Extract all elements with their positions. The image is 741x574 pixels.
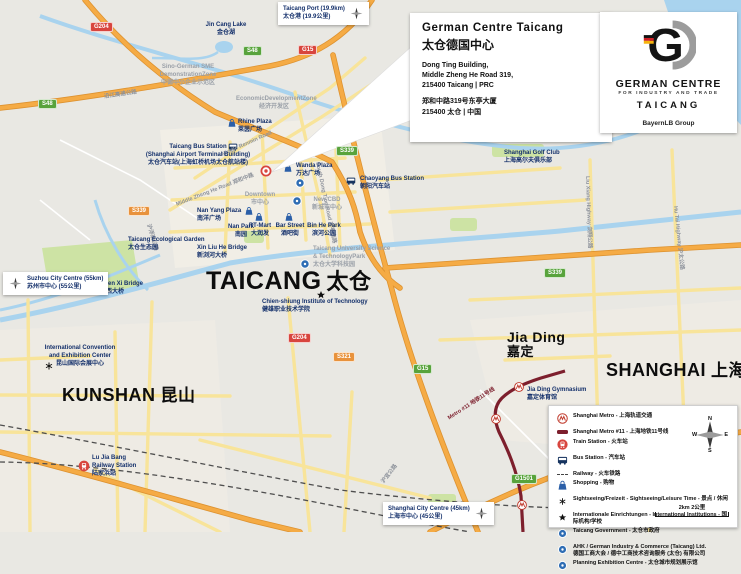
road-badge-s48: S48 xyxy=(38,99,57,109)
distance-box-shanghai: Shanghai City Centre (45km) 上海市中心 (45公里) xyxy=(383,502,494,525)
address-line: 郑和中路319号东亭大厦 xyxy=(422,97,600,107)
city-name-zh: 嘉定 xyxy=(507,345,565,359)
poi-line: Xin Liu He Bridge xyxy=(197,245,247,253)
legend-label: Sightseeing/Freizeit - Sightseeing/Leisu… xyxy=(573,496,728,503)
poi-line: RT-Mart xyxy=(245,223,275,231)
scale-bar: 2km 2公里 xyxy=(655,503,729,517)
poi-new-cbd: New CBD 新城市中心 xyxy=(305,197,349,213)
german-centre-logo-icon: G xyxy=(642,18,696,72)
legend-label: Bus Station - 汽车站 xyxy=(573,455,625,462)
scale-line xyxy=(655,512,729,517)
compass-north-label: N xyxy=(708,416,712,422)
poi-rt-mart: RT-Mart 大润发 xyxy=(245,223,275,239)
poi-intl-convention-center: International Convention and Exhibition … xyxy=(40,345,120,368)
shopping-bag-icon xyxy=(556,480,569,494)
train-station-icon xyxy=(556,439,569,453)
legend-label: Train Station - 火车站 xyxy=(573,439,628,446)
metro-logo-icon xyxy=(556,413,569,427)
poi-sino-german-zone: Sino-German SME DemonstrationZone 中德中小企业… xyxy=(146,64,230,87)
poi-line: 酒吧街 xyxy=(275,231,305,239)
city-name-zh: 太仓 xyxy=(327,269,372,294)
city-label-kunshan: KUNSHAN昆山 xyxy=(62,381,196,406)
blue-marker-icon xyxy=(556,560,569,574)
distance-text-zh: 上海市中心 (45公里) xyxy=(388,513,470,521)
legend-row: Shopping - 购物 xyxy=(556,480,730,494)
poi-line: 新浏河大桥 xyxy=(197,253,247,261)
poi-line: 健雄职业技术学院 xyxy=(262,307,368,315)
poi-line: 昆山国际会展中心 xyxy=(40,361,120,369)
legend-row: Taicang Government - 太仓市政府 xyxy=(556,528,730,542)
poi-line: Jia Ding Gymnasium xyxy=(527,387,586,395)
compass-east-label: E xyxy=(724,432,728,438)
distance-box-taicang-port: Taicang Port (19.9km) 太仓港 (19.9公里) xyxy=(278,2,369,25)
legend-label: Shanghai Metro - 上海轨道交通 xyxy=(573,413,652,420)
poi-line: 南洋广场 xyxy=(197,216,241,224)
international-star-icon xyxy=(556,512,569,526)
poi-shanghai-golf-club: Shanghai Golf Club 上海高尔夫俱乐部 xyxy=(504,150,560,166)
poi-line: 太仓生态园 xyxy=(128,245,205,253)
distance-text-en: Shanghai City Centre (45km) xyxy=(388,505,470,513)
poi-line: Chaoyang Bus Station xyxy=(360,176,424,184)
poi-line: Railway Station xyxy=(92,463,136,471)
city-name-zh: 昆山 xyxy=(161,386,196,405)
city-name-en: SHANGHAI xyxy=(606,360,706,380)
road-badge-g204: G204 xyxy=(90,22,113,32)
blue-marker-icon xyxy=(556,544,569,558)
poi-line: Wanda Plaza xyxy=(296,163,332,171)
poi-line: DemonstrationZone xyxy=(146,72,230,80)
road-badge-g15: G15 xyxy=(413,364,432,374)
map-legend: Shanghai Metro - 上海轨道交通 Shanghai Metro #… xyxy=(548,405,738,528)
blue-marker-icon xyxy=(556,528,569,542)
poi-economic-development-zone: EconomicDevelopmentZone 经济开发区 xyxy=(236,96,312,112)
callout-title-en: German Centre Taicang xyxy=(422,22,600,34)
legend-row: AHK / German Industry & Commerce (Taican… xyxy=(556,544,730,558)
logo-letter: G xyxy=(647,19,683,71)
poi-line: Chien-shiung Institute of Technology xyxy=(262,299,368,307)
railway-icon xyxy=(556,471,569,478)
road-badge-g1501: G1501 xyxy=(511,474,537,484)
legend-label: Taicang Government - 太仓市政府 xyxy=(573,528,660,535)
poi-lu-jia-bang-station: Lu Jia Bang Railway Station 陆家浜站 xyxy=(92,455,136,478)
poi-line: Taicang Ecological Garden xyxy=(128,237,205,245)
compass-west-label: W xyxy=(692,432,697,438)
blue-marker-icon xyxy=(293,197,301,205)
german-centre-logo-card: G GERMAN CENTRE FOR INDUSTRY AND TRADE T… xyxy=(600,12,737,133)
poi-university-science-park: Taicang University Science & TechnologyP… xyxy=(313,246,390,269)
poi-taicang-bus-station: Taicang Bus Station (Shanghai Airport Te… xyxy=(118,144,278,167)
city-label-shanghai: SHANGHAI上海 xyxy=(606,356,741,381)
poi-line: 朝阳汽车站 xyxy=(360,184,424,192)
road-badge-g204: G204 xyxy=(288,333,311,343)
poi-xin-liu-he-bridge: Xin Liu He Bridge 新浏河大桥 xyxy=(197,245,247,261)
brand-group: BayernLB Group xyxy=(600,120,737,127)
legend-label-line: 德国工商大会 / 德中工商技术咨询服务 (太仓) 有限公司 xyxy=(573,551,705,557)
poi-line: 经济开发区 xyxy=(236,104,312,112)
poi-line: Shanghai Golf Club xyxy=(504,150,560,158)
city-name-en: TAICANG xyxy=(206,267,322,295)
sightseeing-asterisk-icon xyxy=(556,496,569,510)
poi-line: Taicang University Science xyxy=(313,246,390,254)
city-label-jiading: Jia Ding嘉定 xyxy=(507,330,565,360)
city-name-en: KUNSHAN xyxy=(62,385,156,405)
poi-line: Lu Jia Bang xyxy=(92,455,136,463)
taicang-location-map: { "callout": { "title_en": "German Centr… xyxy=(0,0,741,532)
scale-label: 2km 2公里 xyxy=(655,503,729,511)
poi-line: 市中心 xyxy=(238,200,282,208)
german-centre-callout: German Centre Taicang 太仓德国中心 Dong Ting B… xyxy=(410,13,612,142)
poi-downtown: Downtown 市中心 xyxy=(238,192,282,208)
poi-line: New CBD xyxy=(305,197,349,205)
distance-text-zh: 太仓港 (19.9公里) xyxy=(283,13,345,21)
poi-chien-shiung-institute: Chien-shiung Institute of Technology 健雄职… xyxy=(262,299,368,315)
legend-label: Railway - 火车铁路 xyxy=(573,471,620,478)
poi-line: 万达广场 xyxy=(296,171,332,179)
poi-line: (Shanghai Airport Terminal Building) xyxy=(118,152,278,160)
city-name-zh: 上海 xyxy=(711,361,741,380)
poi-line: Sino-German SME xyxy=(146,64,230,72)
road-badge-s339: S339 xyxy=(336,146,358,156)
city-name-en: Jia Ding xyxy=(507,330,565,345)
metro-line-icon xyxy=(556,429,569,437)
poi-line: 莱茵广场 xyxy=(238,127,272,135)
address-line: 215400 Taicang | PRC xyxy=(422,81,600,91)
distance-box-suzhou: Suzhou City Centre (55km) 苏州市中心 (55公里) xyxy=(3,272,108,295)
mini-compass-icon xyxy=(8,276,23,291)
poi-line: International Convention xyxy=(40,345,120,353)
distance-text-zh: 苏州市中心 (55公里) xyxy=(27,283,103,291)
blue-marker-icon xyxy=(296,179,304,187)
brand-city: TAICANG xyxy=(600,100,737,111)
mini-compass-icon xyxy=(474,506,489,521)
poi-line: Bar Street xyxy=(275,223,305,231)
poi-line: 陆家浜站 xyxy=(92,471,136,479)
legend-label: Shanghai Metro #11 - 上海地铁11号线 xyxy=(573,429,668,436)
address-line: Dong Ting Building, xyxy=(422,61,600,71)
poi-line: and Exhibition Center xyxy=(40,353,120,361)
poi-wanda-plaza: Wanda Plaza 万达广场 xyxy=(296,163,332,179)
callout-address-en: Dong Ting Building, Middle Zheng He Road… xyxy=(422,61,600,91)
poi-line: 金仓湖 xyxy=(204,30,248,38)
distance-text-en: Taicang Port (19.9km) xyxy=(283,5,345,13)
poi-line: Nan Yang Plaza xyxy=(197,208,241,216)
poi-jin-cang-lake: Jin Cang Lake 金仓湖 xyxy=(204,22,248,38)
poi-line: 上海高尔夫俱乐部 xyxy=(504,158,560,166)
poi-line: 滨河公园 xyxy=(306,231,342,239)
legend-row: Bus Station - 汽车站 xyxy=(556,455,730,469)
mini-compass-icon xyxy=(349,6,364,21)
road-badge-s321: S321 xyxy=(333,352,355,362)
road-badge-g15: G15 xyxy=(298,45,317,55)
legend-label: Planning Exhibition Centre - 太仓城市规划展示馆 xyxy=(573,560,698,567)
address-line: 215400 太仓 | 中国 xyxy=(422,108,600,118)
poi-line: 中德中小企业示范区 xyxy=(146,80,230,88)
legend-label-line: AHK / German Industry & Commerce (Taican… xyxy=(573,544,706,550)
poi-line: 嘉定体育馆 xyxy=(527,395,586,403)
poi-line: Rhine Plaza xyxy=(238,119,272,127)
address-line: Middle Zheng He Road 319, xyxy=(422,71,600,81)
poi-line: EconomicDevelopmentZone xyxy=(236,96,312,104)
poi-line: & TechnologyPark xyxy=(313,254,390,262)
poi-chaoyang-bus-station: Chaoyang Bus Station 朝阳汽车站 xyxy=(360,176,424,192)
poi-line: 太仓大学科技园 xyxy=(313,262,390,270)
brand-name: GERMAN CENTRE xyxy=(600,78,737,90)
german-centre-marker-icon xyxy=(261,166,270,175)
legend-row: Railway - 火车铁路 xyxy=(556,471,730,478)
metro-station-icon xyxy=(518,501,527,510)
metro-station-icon xyxy=(515,383,524,392)
poi-line: 太仓汽车站(上海虹桥机场太仓航站楼) xyxy=(118,160,278,168)
poi-bar-street: Bar Street 酒吧街 xyxy=(275,223,305,239)
road-badge-s48: S48 xyxy=(243,46,262,56)
poi-line: Jin Cang Lake xyxy=(204,22,248,30)
poi-nan-yang-plaza: Nan Yang Plaza 南洋广场 xyxy=(197,208,241,224)
poi-bin-he-park: Bin He Park 滨河公园 xyxy=(306,223,342,239)
road-badge-s339: S339 xyxy=(128,206,150,216)
poi-line: 大润发 xyxy=(245,231,275,239)
poi-line: 新城市中心 xyxy=(305,205,349,213)
poi-ecological-garden: Taicang Ecological Garden 太仓生态园 xyxy=(128,237,205,253)
callout-title-zh: 太仓德国中心 xyxy=(422,36,600,53)
bus-station-icon xyxy=(556,455,569,469)
poi-rhine-plaza: Rhine Plaza 莱茵广场 xyxy=(238,119,272,135)
poi-line: Downtown xyxy=(238,192,282,200)
distance-text-en: Suzhou City Centre (55km) xyxy=(27,275,103,283)
poi-jiading-gymnasium: Jia Ding Gymnasium 嘉定体育馆 xyxy=(527,387,586,403)
legend-label: AHK / German Industry & Commerce (Taican… xyxy=(573,544,706,558)
road-badge-s339: S339 xyxy=(544,268,566,278)
metro-station-icon xyxy=(492,415,501,424)
poi-line: Bin He Park xyxy=(306,223,342,231)
legend-row: Planning Exhibition Centre - 太仓城市规划展示馆 xyxy=(556,560,730,574)
callout-address-zh: 郑和中路319号东亭大厦 215400 太仓 | 中国 xyxy=(422,97,600,117)
train-station-icon xyxy=(79,461,90,472)
poi-line: Taicang Bus Station xyxy=(118,144,278,152)
compass-rose: N E S W xyxy=(693,418,727,452)
brand-tagline: FOR INDUSTRY AND TRADE xyxy=(600,91,737,96)
legend-label: Shopping - 购物 xyxy=(573,480,614,487)
compass-south-label: S xyxy=(708,448,712,454)
